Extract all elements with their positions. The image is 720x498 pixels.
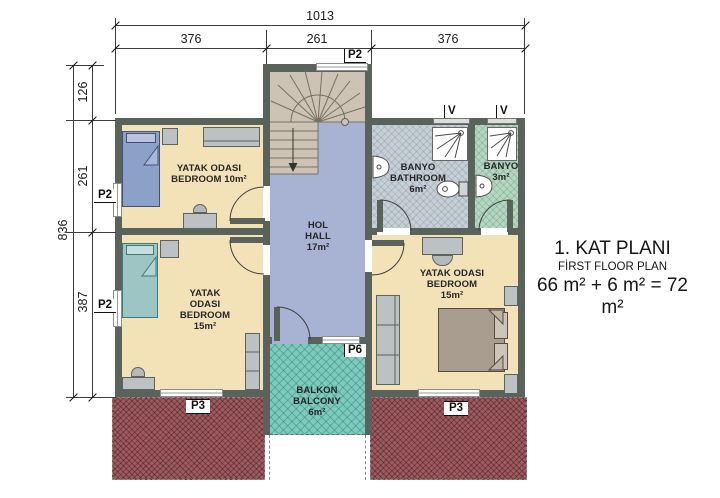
label-bedroom-sw-line3: BEDROOM — [165, 310, 245, 321]
door-leaf-bedroom-se — [372, 240, 404, 246]
label-bathroom: BANYO BATHROOM 6m² — [378, 162, 458, 195]
wall-balcony-a — [263, 337, 272, 344]
marker-p2-stair: P2 — [344, 49, 366, 63]
shower-bathroom — [432, 127, 468, 161]
chair-sw — [131, 367, 145, 377]
label-bathroom-line1: BANYO — [378, 162, 458, 173]
wardrobe-nw — [203, 127, 260, 147]
desk-se — [422, 237, 463, 255]
label-bathroom-line3: 6m² — [378, 184, 458, 195]
label-wc: BANYO 3m² — [479, 161, 523, 183]
window-bottom-right — [418, 389, 480, 397]
floor-stair-lower — [270, 122, 318, 174]
door-leaf-bedroom-sw — [230, 237, 265, 243]
wardrobe-sw — [245, 333, 260, 390]
title-floor-name-en: FİRST FLOOR PLAN — [530, 261, 695, 273]
label-wc-line1: BANYO — [479, 161, 523, 172]
label-bedroom-nw-line1: YATAK ODASI — [149, 163, 269, 174]
wall-hall-east-a — [365, 125, 372, 240]
dim-text-top-center: 261 — [277, 32, 357, 46]
wall-top-left — [115, 118, 270, 125]
dim-line-top-segments — [115, 48, 525, 49]
nightstand-sw — [160, 240, 179, 258]
label-bedroom-sw: YATAK ODASI BEDROOM 15m² — [165, 288, 245, 332]
wall-stair-right — [365, 64, 372, 125]
dim-text-left-bottom: 387 — [76, 284, 90, 320]
wall-balcony-c — [360, 337, 372, 344]
balcony-projection-right-edge — [365, 435, 366, 480]
marker-vent-bathroom: V — [444, 105, 460, 118]
wall-bath-south-a — [365, 228, 377, 235]
dim-text-left-middle: 261 — [76, 158, 90, 194]
title-block: 1. KAT PLANI FİRST FLOOR PLAN 66 m² + 6 … — [530, 238, 695, 319]
vent-bathroom — [433, 118, 470, 124]
dim-line-left-total — [73, 65, 74, 397]
dim-text-left-total: 836 — [56, 212, 70, 248]
pillow-se-bottom — [494, 343, 508, 370]
wall-right — [518, 118, 525, 397]
pillow-nw — [126, 133, 156, 143]
marker-p6-balcony: P6 — [344, 344, 366, 357]
dim-text-top-total: 1013 — [280, 9, 360, 23]
label-bedroom-nw: YATAK ODASI BEDROOM 10m² — [149, 163, 269, 185]
vent-wc — [487, 118, 517, 124]
label-hall: HOL HALL 17m² — [288, 220, 348, 253]
door-leaf-wc — [507, 200, 513, 232]
label-bedroom-se-line2: BEDROOM — [402, 279, 502, 290]
shower-wc — [487, 127, 517, 161]
ext-line — [524, 18, 525, 114]
label-bathroom-line2: BATHROOM — [378, 173, 458, 184]
marker-p3-right: P3 — [444, 401, 468, 416]
label-bedroom-sw-line2: ODASI — [165, 299, 245, 310]
dim-text-top-left: 376 — [151, 32, 231, 46]
nightstand-se-top — [504, 286, 518, 306]
desk-sw — [122, 377, 155, 390]
floor-plan: YATAK ODASI BEDROOM 10m² YATAK ODASI BED… — [0, 0, 720, 498]
label-balcony-line3: 6m² — [277, 407, 357, 418]
label-wc-line2: 3m² — [479, 172, 523, 183]
window-stair-top — [316, 63, 368, 71]
floor-stair-upper — [270, 70, 365, 122]
label-hall-line1: HOL — [288, 220, 348, 231]
window-bottom-left — [160, 389, 223, 397]
label-hall-line2: HALL — [288, 231, 348, 242]
label-bedroom-nw-line2: BEDROOM 10m² — [149, 174, 269, 185]
wall-stair-left — [263, 64, 270, 125]
dim-text-left-top: 126 — [76, 74, 90, 110]
window-balcony — [322, 336, 360, 344]
door-leaf-balcony — [274, 307, 280, 341]
label-bedroom-sw-line1: YATAK — [165, 288, 245, 299]
ext-line — [115, 18, 116, 114]
chair-nw — [193, 204, 207, 213]
wardrobe-se — [376, 295, 400, 385]
dim-line-top-total — [115, 25, 525, 26]
pillow-se-top — [494, 312, 508, 339]
dim-text-top-right: 376 — [408, 32, 488, 46]
title-area-summary: 66 m² + 6 m² = 72 m² — [530, 275, 695, 319]
label-balcony: BALKON BALCONY 6m² — [277, 385, 357, 418]
label-bedroom-se-line1: YATAK ODASI — [402, 268, 502, 279]
title-floor-name-tr: 1. KAT PLANI — [530, 238, 695, 260]
nightstand-se-bottom — [504, 374, 518, 394]
label-hall-line3: 17m² — [288, 242, 348, 253]
wall-balcony-b — [308, 337, 322, 344]
label-bedroom-se-line3: 15m² — [402, 290, 502, 301]
door-leaf-bathroom — [377, 200, 383, 232]
wall-bedrooms-divider — [115, 228, 270, 235]
pillow-sw — [126, 245, 154, 255]
label-balcony-line1: BALKON — [277, 385, 357, 396]
marker-p2-bedroom-sw: P2 — [94, 299, 116, 313]
desk-nw — [183, 213, 217, 229]
label-balcony-line2: BALCONY — [277, 396, 357, 407]
label-bedroom-se: YATAK ODASI BEDROOM 15m² — [402, 268, 502, 301]
balcony-projection-left-edge — [269, 435, 270, 480]
wall-bath-south-b — [410, 228, 481, 235]
wall-left — [115, 118, 122, 397]
marker-p3-left: P3 — [186, 399, 210, 414]
marker-p2-bedroom-nw: P2 — [94, 189, 116, 203]
door-leaf-bedroom-nw — [230, 218, 265, 224]
nightstand-nw — [162, 128, 178, 145]
wall-hall-west-c — [263, 275, 270, 435]
marker-vent-wc: V — [496, 105, 512, 118]
wall-bath-divider — [468, 125, 475, 228]
label-bedroom-sw-line4: 15m² — [165, 321, 245, 332]
